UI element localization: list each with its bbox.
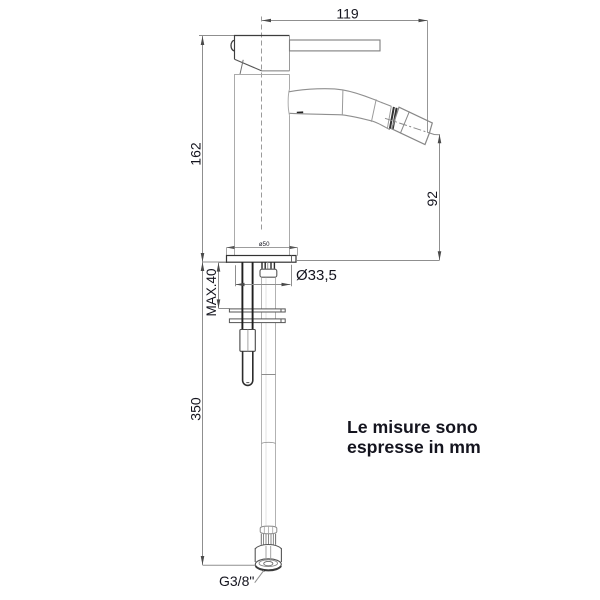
svg-text:350: 350 [188,397,204,421]
svg-text:Le misure sono: Le misure sono [347,417,478,437]
svg-text:92: 92 [424,191,440,207]
svg-text:G3/8": G3/8" [219,573,254,589]
svg-text:MAX.40: MAX.40 [204,268,219,316]
svg-text:119: 119 [336,6,359,22]
svg-text:espresse in mm: espresse in mm [347,437,481,457]
svg-text:Ø33,5: Ø33,5 [296,267,337,284]
svg-text:162: 162 [188,142,204,166]
svg-text:ø50: ø50 [259,241,270,248]
